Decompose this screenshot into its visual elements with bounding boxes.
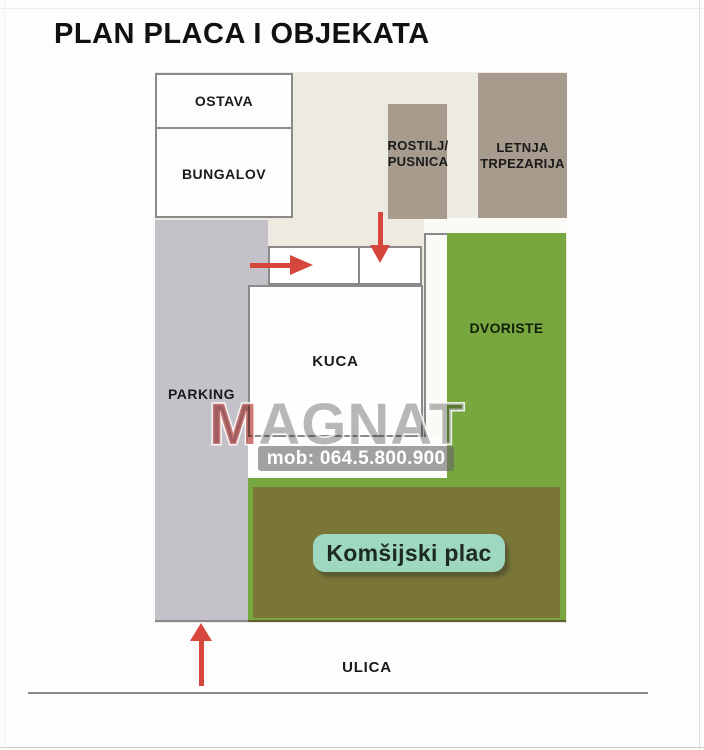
watermark-phone-band: mob: 064.5.800.900	[258, 446, 454, 471]
building-block-nw: OSTAVA BUNGALOV	[155, 73, 293, 218]
site-plan-page: PLAN PLACA I OBJEKATA DVORISTE OSTAVA BU…	[0, 0, 704, 750]
street-line	[28, 692, 648, 694]
arrow-down-icon-head	[370, 245, 390, 263]
letnja-trpezarija-label: LETNJA TRPEZARIJA	[472, 140, 573, 172]
area-parking-upper	[155, 220, 268, 287]
kuca-label: KUCA	[312, 353, 359, 370]
neighbor-plot-label: Komšijski plac	[326, 540, 491, 567]
arrow-up-icon	[199, 639, 204, 686]
dvoriste-label: DVORISTE	[447, 320, 566, 336]
plot-bottom-border	[248, 620, 566, 622]
page-frame-top	[0, 8, 704, 9]
arrow-right-icon	[250, 263, 292, 268]
page-frame-right	[699, 0, 700, 750]
ostava-label: OSTAVA	[195, 93, 253, 109]
room-ostava: OSTAVA	[157, 75, 291, 129]
arrow-right-icon-head	[290, 255, 313, 275]
neighbor-plot-chip: Komšijski plac	[313, 534, 505, 572]
bungalov-label: BUNGALOV	[182, 166, 266, 182]
walkway-strip-top	[424, 218, 567, 233]
rostilj-pusnica-label: ROSTILJ/ PUSNICA	[357, 138, 479, 170]
watermark-phone: mob: 064.5.800.900	[267, 448, 446, 470]
page-title: PLAN PLACA I OBJEKATA	[54, 18, 474, 51]
street-label: ULICA	[300, 659, 434, 676]
entry-rooms-divider	[358, 248, 360, 283]
arrow-down-icon	[378, 212, 383, 246]
watermark-brand-initial: M	[209, 392, 258, 457]
arrow-up-icon-head	[190, 623, 212, 641]
page-frame-bottom	[0, 747, 704, 748]
page-frame-left	[4, 0, 5, 750]
room-bungalov: BUNGALOV	[157, 131, 291, 216]
